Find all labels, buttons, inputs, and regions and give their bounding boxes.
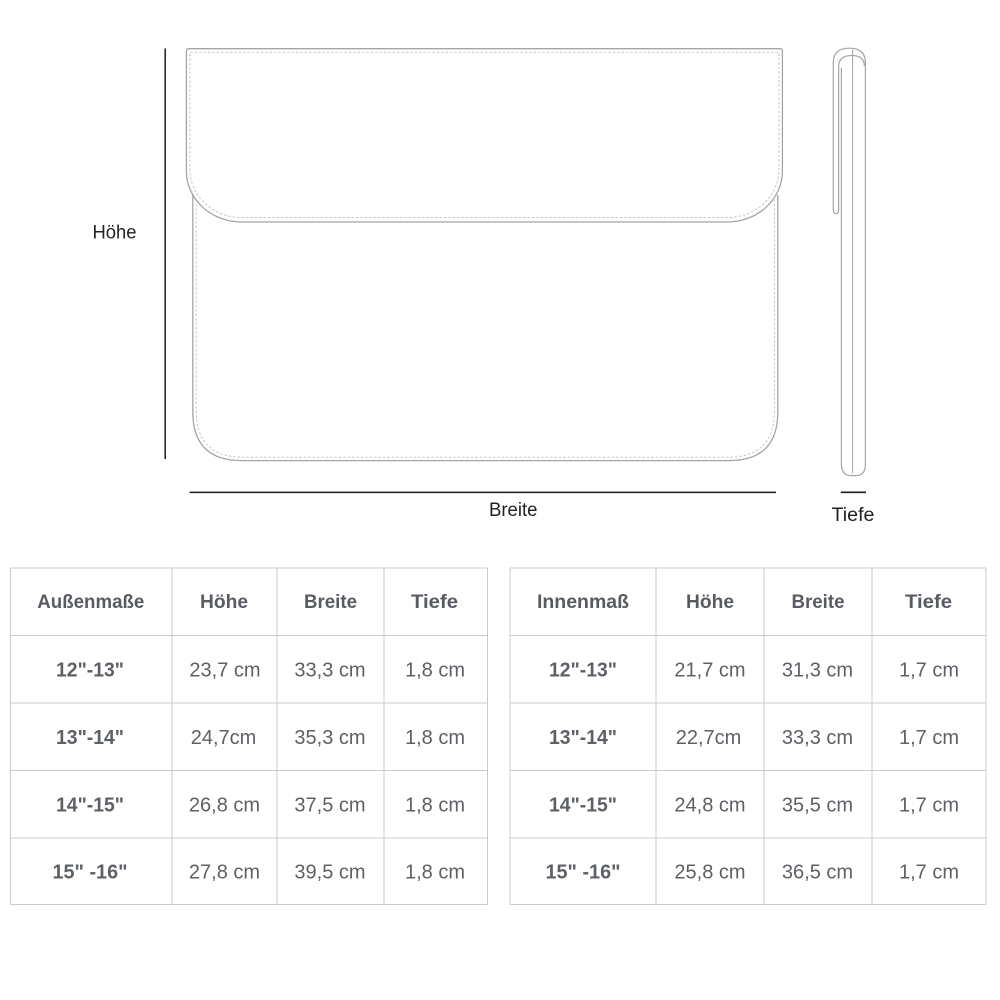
svg-text:33,3 cm: 33,3 cm: [782, 727, 853, 749]
svg-text:23,7 cm: 23,7 cm: [189, 660, 260, 682]
svg-text:25,8 cm: 25,8 cm: [674, 862, 745, 884]
svg-text:39,5 cm: 39,5 cm: [294, 862, 365, 884]
svg-text:Breite: Breite: [304, 591, 357, 613]
svg-text:35,3 cm: 35,3 cm: [294, 727, 365, 749]
svg-text:Tiefe: Tiefe: [832, 504, 875, 526]
svg-text:Tiefe: Tiefe: [411, 591, 458, 613]
svg-text:1,8 cm: 1,8 cm: [405, 795, 465, 817]
svg-text:Höhe: Höhe: [686, 591, 734, 613]
svg-text:13"-14": 13"-14": [549, 727, 617, 749]
svg-text:33,3 cm: 33,3 cm: [294, 660, 365, 682]
svg-text:27,8 cm: 27,8 cm: [189, 862, 260, 884]
svg-text:26,8 cm: 26,8 cm: [189, 795, 260, 817]
svg-text:1,8 cm: 1,8 cm: [405, 660, 465, 682]
svg-text:15" -16": 15" -16": [53, 862, 128, 884]
svg-text:Breite: Breite: [792, 591, 845, 613]
svg-text:36,5 cm: 36,5 cm: [782, 862, 853, 884]
svg-text:12"-13": 12"-13": [549, 660, 617, 682]
svg-text:31,3 cm: 31,3 cm: [782, 660, 853, 682]
svg-text:15" -16": 15" -16": [546, 862, 621, 884]
svg-text:1,8 cm: 1,8 cm: [405, 727, 465, 749]
svg-text:24,7cm: 24,7cm: [191, 727, 257, 749]
svg-text:Tiefe: Tiefe: [905, 591, 952, 613]
svg-text:1,7 cm: 1,7 cm: [899, 727, 959, 749]
svg-text:37,5 cm: 37,5 cm: [294, 795, 365, 817]
svg-text:Höhe: Höhe: [200, 591, 248, 613]
svg-text:1,7 cm: 1,7 cm: [899, 862, 959, 884]
svg-text:35,5 cm: 35,5 cm: [782, 795, 853, 817]
svg-text:Breite: Breite: [489, 499, 538, 521]
svg-text:24,8 cm: 24,8 cm: [674, 795, 745, 817]
svg-text:14"-15": 14"-15": [549, 795, 617, 817]
svg-text:22,7cm: 22,7cm: [676, 727, 742, 749]
svg-text:Innenmaß: Innenmaß: [537, 591, 629, 613]
svg-text:14"-15": 14"-15": [56, 795, 124, 817]
svg-text:1,7 cm: 1,7 cm: [899, 660, 959, 682]
svg-text:1,7 cm: 1,7 cm: [899, 795, 959, 817]
svg-text:Höhe: Höhe: [93, 222, 137, 244]
svg-text:Außenmaße: Außenmaße: [37, 591, 144, 613]
svg-text:1,8 cm: 1,8 cm: [405, 862, 465, 884]
svg-text:21,7 cm: 21,7 cm: [674, 660, 745, 682]
svg-text:13"-14": 13"-14": [56, 727, 124, 749]
svg-text:12"-13": 12"-13": [56, 660, 124, 682]
